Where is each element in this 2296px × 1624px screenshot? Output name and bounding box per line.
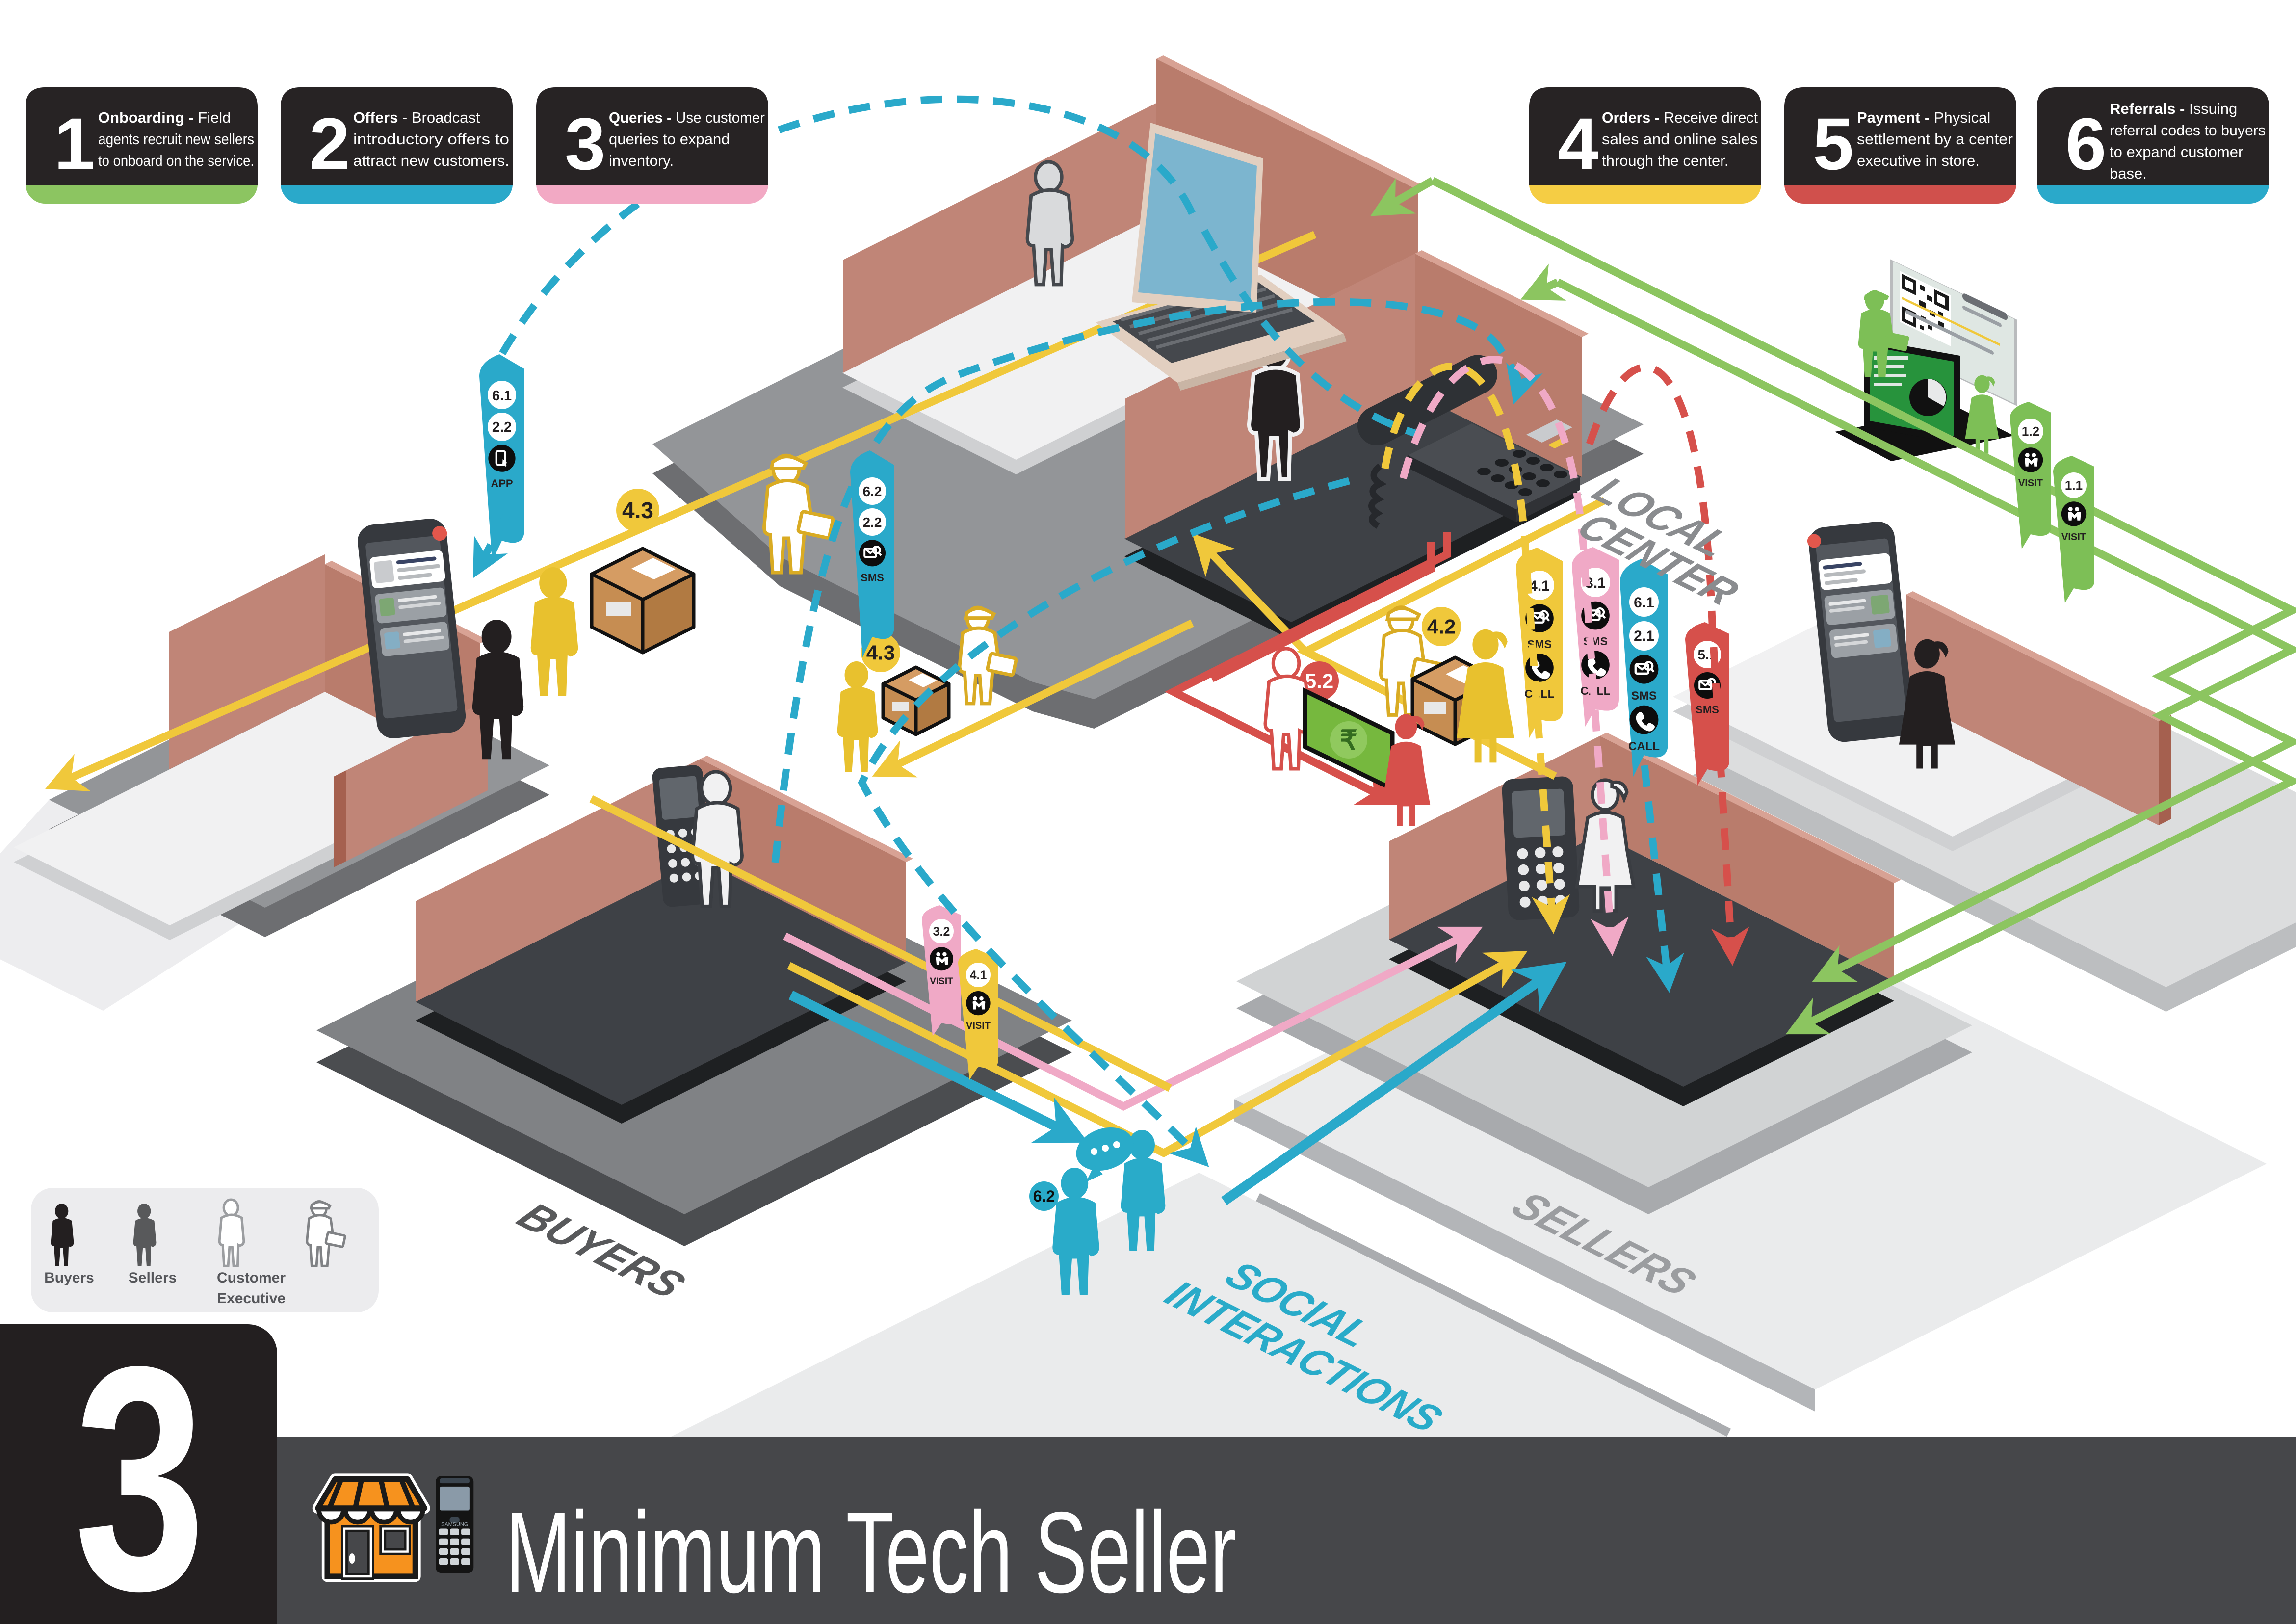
svg-text:6.1: 6.1 <box>492 388 512 404</box>
svg-text:6: 6 <box>2065 103 2106 185</box>
svg-text:Offers - Broadcast: Offers - Broadcast <box>353 109 480 126</box>
svg-text:6.2: 6.2 <box>1033 1187 1055 1205</box>
svg-text:5.2: 5.2 <box>1305 669 1333 692</box>
svg-text:6.2: 6.2 <box>863 484 882 499</box>
svg-text:inventory.: inventory. <box>609 152 674 169</box>
svg-text:introductory offers to: introductory offers to <box>353 131 509 148</box>
svg-text:attract new customers.: attract new customers. <box>353 152 509 169</box>
svg-text:SMS: SMS <box>1696 704 1719 716</box>
svg-text:VISIT: VISIT <box>2061 532 2086 543</box>
svg-text:base.: base. <box>2110 165 2147 182</box>
svg-text:4.1: 4.1 <box>970 969 987 982</box>
svg-text:agents recruit new sellers: agents recruit new sellers <box>98 131 254 148</box>
svg-text:Buyers: Buyers <box>44 1270 94 1286</box>
svg-text:to expand customer: to expand customer <box>2110 143 2243 160</box>
svg-text:Queries - Use customer: Queries - Use customer <box>609 109 765 126</box>
svg-text:Sellers: Sellers <box>129 1270 177 1286</box>
svg-text:Customer: Customer <box>217 1270 286 1286</box>
svg-text:through the center.: through the center. <box>1602 152 1729 169</box>
svg-text:Payment - Physical: Payment - Physical <box>1857 109 1990 126</box>
svg-text:2.2: 2.2 <box>492 419 512 435</box>
svg-text:Executive: Executive <box>217 1290 286 1307</box>
svg-text:3.2: 3.2 <box>933 925 950 939</box>
svg-text:4.3: 4.3 <box>622 498 653 523</box>
svg-text:APP: APP <box>491 477 513 490</box>
svg-text:Referrals - Issuing: Referrals - Issuing <box>2110 100 2237 117</box>
svg-text:2.2: 2.2 <box>863 515 882 530</box>
svg-text:Minimum Tech Seller: Minimum Tech Seller <box>505 1488 1236 1617</box>
svg-text:1.2: 1.2 <box>2022 424 2039 439</box>
svg-text:1: 1 <box>54 103 95 185</box>
svg-text:referral codes to buyers: referral codes to buyers <box>2110 122 2266 139</box>
svg-text:4: 4 <box>1558 103 1598 185</box>
svg-text:executive in store.: executive in store. <box>1857 152 1980 169</box>
svg-text:queries to expand: queries to expand <box>609 131 730 148</box>
svg-text:4.3: 4.3 <box>866 641 895 664</box>
svg-text:VISIT: VISIT <box>966 1021 991 1031</box>
svg-text:SAMSUNG: SAMSUNG <box>441 1521 468 1527</box>
svg-text:settlement by a center: settlement by a center <box>1857 131 2013 148</box>
svg-text:SMS: SMS <box>1631 689 1657 703</box>
svg-text:VISIT: VISIT <box>930 976 953 987</box>
svg-text:Onboarding - Field: Onboarding - Field <box>98 109 231 126</box>
svg-text:2: 2 <box>309 103 350 185</box>
svg-text:VISIT: VISIT <box>2018 478 2043 489</box>
svg-text:SMS: SMS <box>861 572 884 584</box>
svg-text:6.1: 6.1 <box>1634 595 1654 611</box>
svg-text:3: 3 <box>565 103 605 185</box>
svg-text:₹: ₹ <box>1340 725 1357 756</box>
svg-text:Orders - Receive direct: Orders - Receive direct <box>1602 109 1758 126</box>
svg-text:3: 3 <box>74 1300 206 1624</box>
svg-text:CALL: CALL <box>1628 740 1660 753</box>
svg-text:5: 5 <box>1813 103 1853 185</box>
svg-text:sales and online sales: sales and online sales <box>1602 131 1758 148</box>
svg-text:4.2: 4.2 <box>1427 615 1456 638</box>
svg-text:to onboard on the service.: to onboard on the service. <box>98 152 254 169</box>
svg-text:2.1: 2.1 <box>1634 628 1654 644</box>
svg-text:1.1: 1.1 <box>2065 478 2083 493</box>
svg-text:4.1: 4.1 <box>1529 578 1550 594</box>
